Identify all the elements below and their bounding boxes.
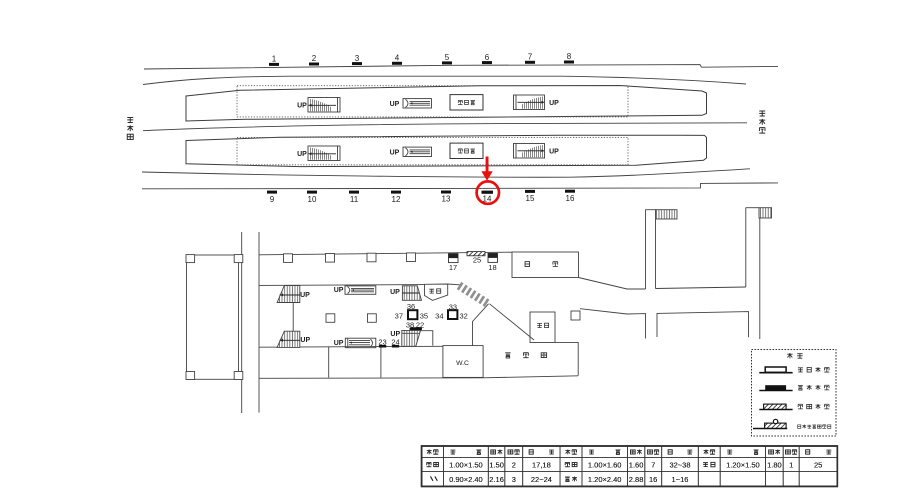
svg-text:UP: UP <box>549 100 559 107</box>
svg-text:2: 2 <box>512 461 516 470</box>
svg-text:13: 13 <box>442 195 451 204</box>
svg-text:UP: UP <box>390 289 400 296</box>
svg-text:25: 25 <box>473 256 481 265</box>
svg-text:25: 25 <box>814 461 822 470</box>
svg-text:2.88: 2.88 <box>629 475 644 484</box>
svg-text:16: 16 <box>649 475 657 484</box>
svg-text:2: 2 <box>312 54 317 63</box>
svg-text:17: 17 <box>449 263 457 272</box>
svg-text:17,18: 17,18 <box>532 461 551 470</box>
svg-text:11: 11 <box>350 195 359 204</box>
svg-text:UP: UP <box>297 102 307 109</box>
svg-text:35: 35 <box>420 312 428 321</box>
svg-text:16: 16 <box>566 194 575 203</box>
svg-text:1.50: 1.50 <box>489 461 504 470</box>
svg-text:1~16: 1~16 <box>672 475 689 484</box>
svg-text:3: 3 <box>355 54 360 63</box>
svg-text:12: 12 <box>392 195 401 204</box>
svg-text:10: 10 <box>308 195 317 204</box>
svg-text:37: 37 <box>395 311 403 320</box>
svg-text:18: 18 <box>488 263 496 272</box>
svg-text:1.80: 1.80 <box>767 461 782 470</box>
svg-text:3: 3 <box>512 475 516 484</box>
svg-text:1.60: 1.60 <box>629 461 644 470</box>
svg-text:UP: UP <box>334 340 344 347</box>
svg-text:4: 4 <box>395 54 400 63</box>
svg-text:1.00×1.50: 1.00×1.50 <box>449 461 483 470</box>
svg-text:UP: UP <box>390 101 400 108</box>
svg-text:0.90×2.40: 0.90×2.40 <box>449 475 483 484</box>
svg-text:32~38: 32~38 <box>669 461 690 470</box>
svg-text:2.16: 2.16 <box>489 475 504 484</box>
svg-text:W.C: W.C <box>456 360 469 367</box>
svg-text:1.20×2.40: 1.20×2.40 <box>588 475 622 484</box>
svg-text:7: 7 <box>528 53 533 62</box>
svg-text:UP: UP <box>390 331 400 338</box>
svg-text:UP: UP <box>334 287 344 294</box>
svg-text:34: 34 <box>435 311 443 320</box>
svg-text:UP: UP <box>300 292 310 299</box>
svg-text:15: 15 <box>526 194 535 203</box>
svg-text:UP: UP <box>300 337 310 344</box>
svg-text:9: 9 <box>270 195 275 204</box>
svg-text:5: 5 <box>445 53 450 62</box>
svg-text:8: 8 <box>567 52 572 61</box>
svg-text:7: 7 <box>651 461 655 470</box>
svg-text:1: 1 <box>789 461 793 470</box>
svg-text:1.00×1.60: 1.00×1.60 <box>588 461 622 470</box>
svg-text:22~24: 22~24 <box>531 475 552 484</box>
svg-text:1: 1 <box>272 55 277 64</box>
svg-text:1.20×1.50: 1.20×1.50 <box>726 461 760 470</box>
svg-text:32: 32 <box>460 311 468 320</box>
svg-text:6: 6 <box>485 53 490 62</box>
